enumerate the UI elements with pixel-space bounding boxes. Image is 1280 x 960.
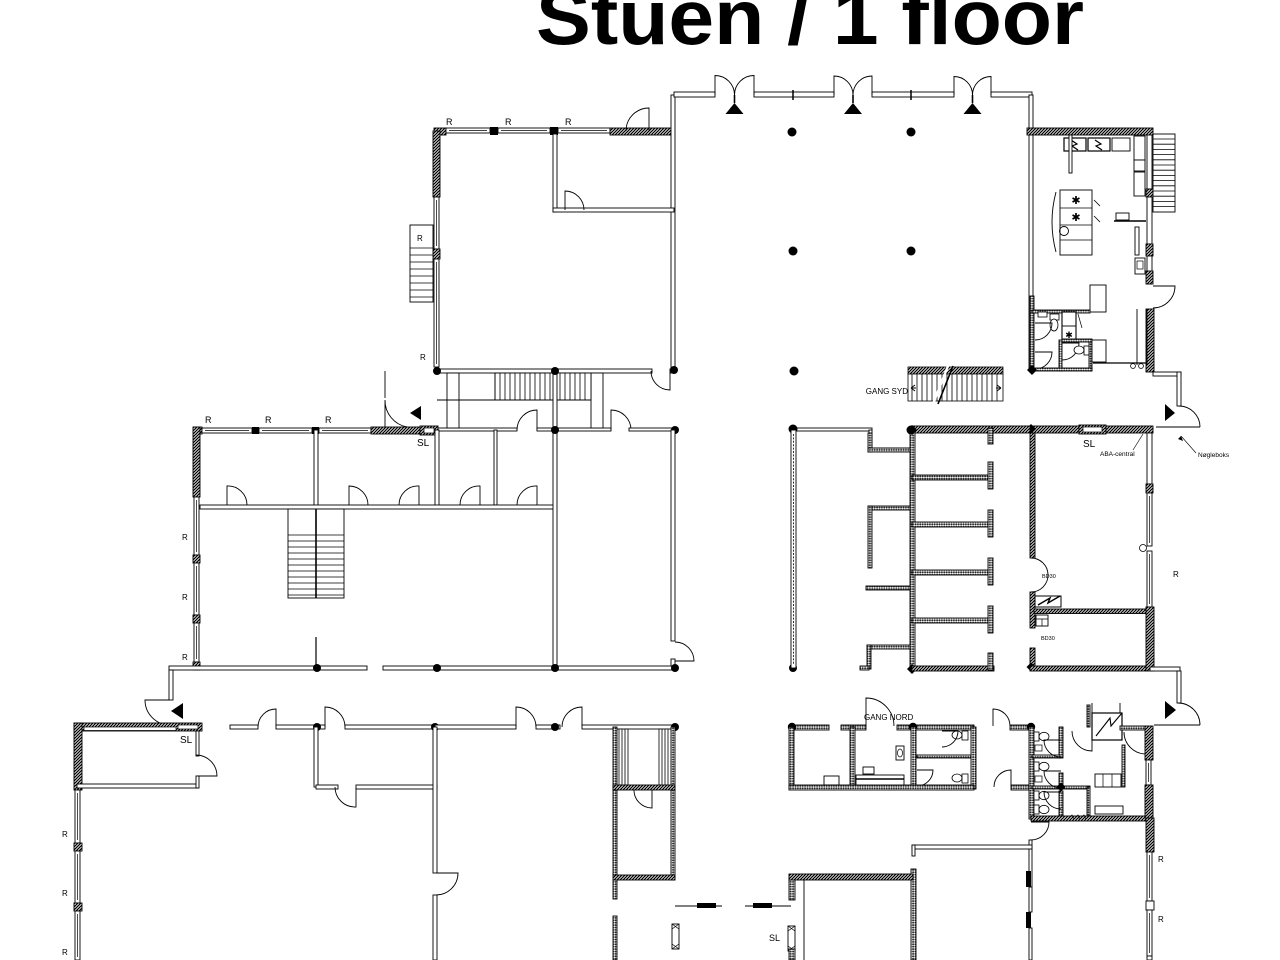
svg-text:R: R bbox=[1158, 855, 1164, 864]
svg-text:GANG SYD: GANG SYD bbox=[866, 387, 908, 396]
svg-text:✱: ✱ bbox=[1065, 330, 1073, 340]
svg-text:✱: ✱ bbox=[1071, 212, 1080, 224]
svg-text:R: R bbox=[182, 593, 188, 602]
svg-text:BD30: BD30 bbox=[1041, 636, 1055, 642]
svg-text:GANG NORD: GANG NORD bbox=[864, 713, 914, 722]
svg-text:SL: SL bbox=[180, 735, 193, 746]
svg-text:R: R bbox=[205, 415, 212, 425]
svg-text:R: R bbox=[1173, 570, 1179, 579]
svg-text:R: R bbox=[62, 830, 68, 839]
svg-text:R: R bbox=[325, 415, 332, 425]
svg-text:R: R bbox=[446, 117, 453, 127]
svg-text:R: R bbox=[182, 533, 188, 542]
svg-text:R: R bbox=[565, 117, 572, 127]
svg-text:BD30: BD30 bbox=[1042, 574, 1056, 580]
svg-text:SL: SL bbox=[769, 933, 780, 943]
svg-text:SL: SL bbox=[417, 438, 430, 449]
svg-text:R: R bbox=[420, 353, 426, 362]
svg-text:✱: ✱ bbox=[1071, 195, 1080, 207]
svg-text:R: R bbox=[1158, 915, 1164, 924]
svg-text:R: R bbox=[505, 117, 512, 127]
svg-text:R: R bbox=[62, 889, 68, 898]
svg-text:R: R bbox=[62, 948, 68, 957]
svg-text:ABA-central: ABA-central bbox=[1100, 451, 1135, 458]
svg-text:R: R bbox=[417, 234, 423, 243]
svg-text:SL: SL bbox=[1083, 439, 1096, 450]
svg-text:Stuen / 1 floor: Stuen / 1 floor bbox=[536, 0, 1084, 61]
svg-text:R: R bbox=[182, 653, 188, 662]
svg-text:Nøgleboks: Nøgleboks bbox=[1198, 452, 1230, 459]
svg-text:R: R bbox=[265, 415, 272, 425]
